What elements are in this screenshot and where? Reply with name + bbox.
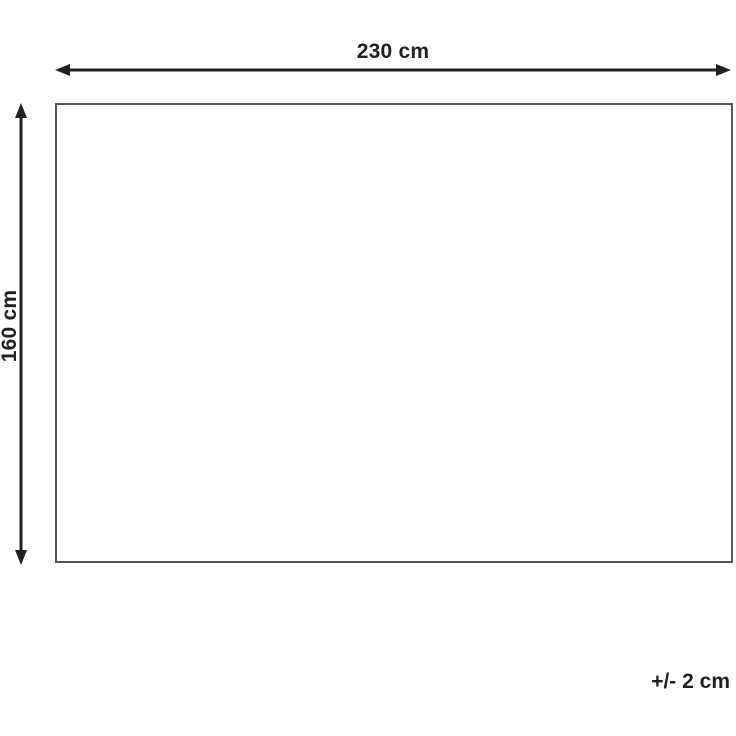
width-dimension-label: 230 cm <box>55 40 731 64</box>
dimension-diagram: 230 cm 160 cm +/- 2 cm <box>0 0 736 736</box>
width-dimension-arrow-icon <box>55 62 731 78</box>
tolerance-label: +/- 2 cm <box>651 670 730 694</box>
product-outline-rectangle <box>55 103 733 563</box>
height-dimension-label: 160 cm <box>0 290 22 362</box>
